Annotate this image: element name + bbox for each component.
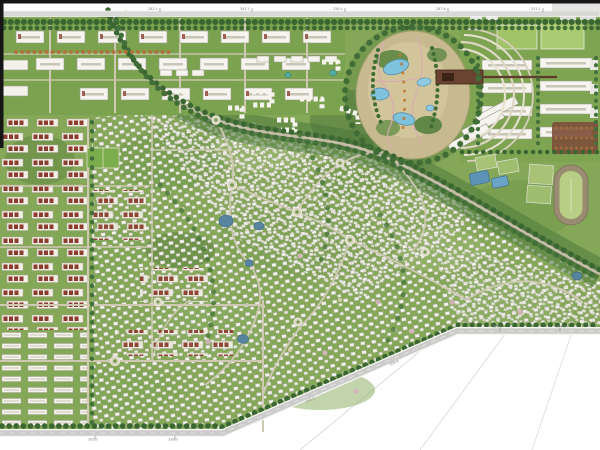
roundabout-center [297,321,300,324]
apartment-slab-detail [143,36,163,39]
apartment-slab-detail [225,36,245,39]
masterplan-svg: 282.1342.1336.4287.6233.1261.5338.3256.1… [0,0,600,450]
pond [245,260,253,267]
commercial-slab-detail [546,62,586,65]
survey-label-top: 336.4 [333,7,343,11]
tennis-court [528,164,553,185]
screen-edge-bar-top [0,0,600,4]
screen-edge-bar-left [0,0,4,148]
apartment-slab-detail [286,63,306,66]
slab-district-bottom-left [0,332,88,428]
apartment-slab-detail [307,36,327,39]
park-lawn [414,116,442,134]
roundabout-center [424,251,427,254]
pond [572,272,582,280]
apartment-slab-roofmark [287,91,290,96]
roundabout-center [214,118,217,121]
pond [254,222,264,230]
cluster-villa-row [274,56,286,62]
tennis-court [526,185,551,204]
offsite-strip-topright [552,4,600,12]
apartment-slab-detail [204,63,224,66]
apartment-slab-detail [248,93,268,96]
plaza [288,348,292,352]
survey-label-top: 233.1 [531,7,541,11]
apartment-slab-roofmark [305,34,308,39]
apartment-slab-detail [266,36,286,39]
apartment-slab-detail [125,93,145,96]
survey-label-bottom: 261.5 [88,438,98,442]
plaza [409,328,414,333]
lagoon-pond [426,105,434,111]
commercial-slab-detail [488,87,526,90]
apartment-slab-detail [20,36,40,39]
park-lawn [427,48,447,62]
apartment-slab-roofmark [18,34,21,39]
apartment-slab-detail [84,93,104,96]
pond [330,70,337,76]
cluster-villa-row [160,70,172,76]
survey-label-top: 342.1 [240,7,250,11]
cluster-villa-row [291,56,303,62]
apartment-slab-detail [163,63,183,66]
pond [238,335,249,344]
apartment-slab-roofmark [246,91,249,96]
cluster-villa-row [176,70,188,76]
roundabout-center [157,301,160,304]
plaza [449,299,454,304]
roundabout-center [113,359,117,363]
cluster-villa-row [257,56,269,62]
survey-label-bottom: 338.3 [168,438,178,442]
lagoon-pier-hut [442,73,454,81]
rowhouse-district-red [88,190,146,240]
pond [219,215,233,227]
masterplan-render-root: 282.1342.1336.4287.6233.1261.5338.3256.1… [0,0,600,450]
rowhouse-district-red [0,118,88,330]
apartment-slab-roofmark [264,34,267,39]
roundabout-center [230,183,234,187]
apartment-slab-roofmark [141,34,144,39]
apartment-slab-detail [245,63,265,66]
survey-label-bottom: 106.3 [556,325,566,329]
apartment-block [2,86,28,96]
cluster-villa-row [192,70,204,76]
masterplan-map: 282.1342.1336.4287.6233.1261.5338.3256.1… [0,0,600,450]
plaza [517,309,522,314]
apartment-slab-roofmark [100,34,103,39]
plaza [353,388,358,393]
survey-label-top: 282.1 [148,7,158,11]
apartment-slab-detail [207,93,227,96]
apartment-slab-detail [61,36,81,39]
apartment-slab-detail [40,63,60,66]
apartment-slab-roofmark [82,91,85,96]
apartment-slab-roofmark [205,91,208,96]
apartment-slab-roofmark [123,91,126,96]
roundabout-center [348,238,352,242]
commercial-slab-detail [546,108,586,111]
apartment-slab-detail [184,36,204,39]
perimeter-road-top [0,11,600,17]
roundabout-center [295,210,299,214]
plaza [297,253,302,258]
plaza [322,350,327,355]
survey-label-top: 287.6 [436,7,446,11]
plaza [375,299,380,304]
roundabout-center [339,162,342,165]
commercial-slab-detail [546,85,586,88]
plaza [205,339,210,344]
cluster-villa-row [308,56,320,62]
pond [285,73,291,78]
plaza [338,298,342,302]
apartment-slab-roofmark [59,34,62,39]
rowhouse-district-red [115,330,233,356]
apartment-slab-detail [81,63,101,66]
apartment-block [2,60,28,70]
apartment-slab-detail [289,93,309,96]
apartment-slab-roofmark [223,34,226,39]
rowhouse-district-red [140,268,210,302]
apartment-slab-roofmark [182,34,185,39]
survey-label-bottom: 186.2 [492,325,502,329]
